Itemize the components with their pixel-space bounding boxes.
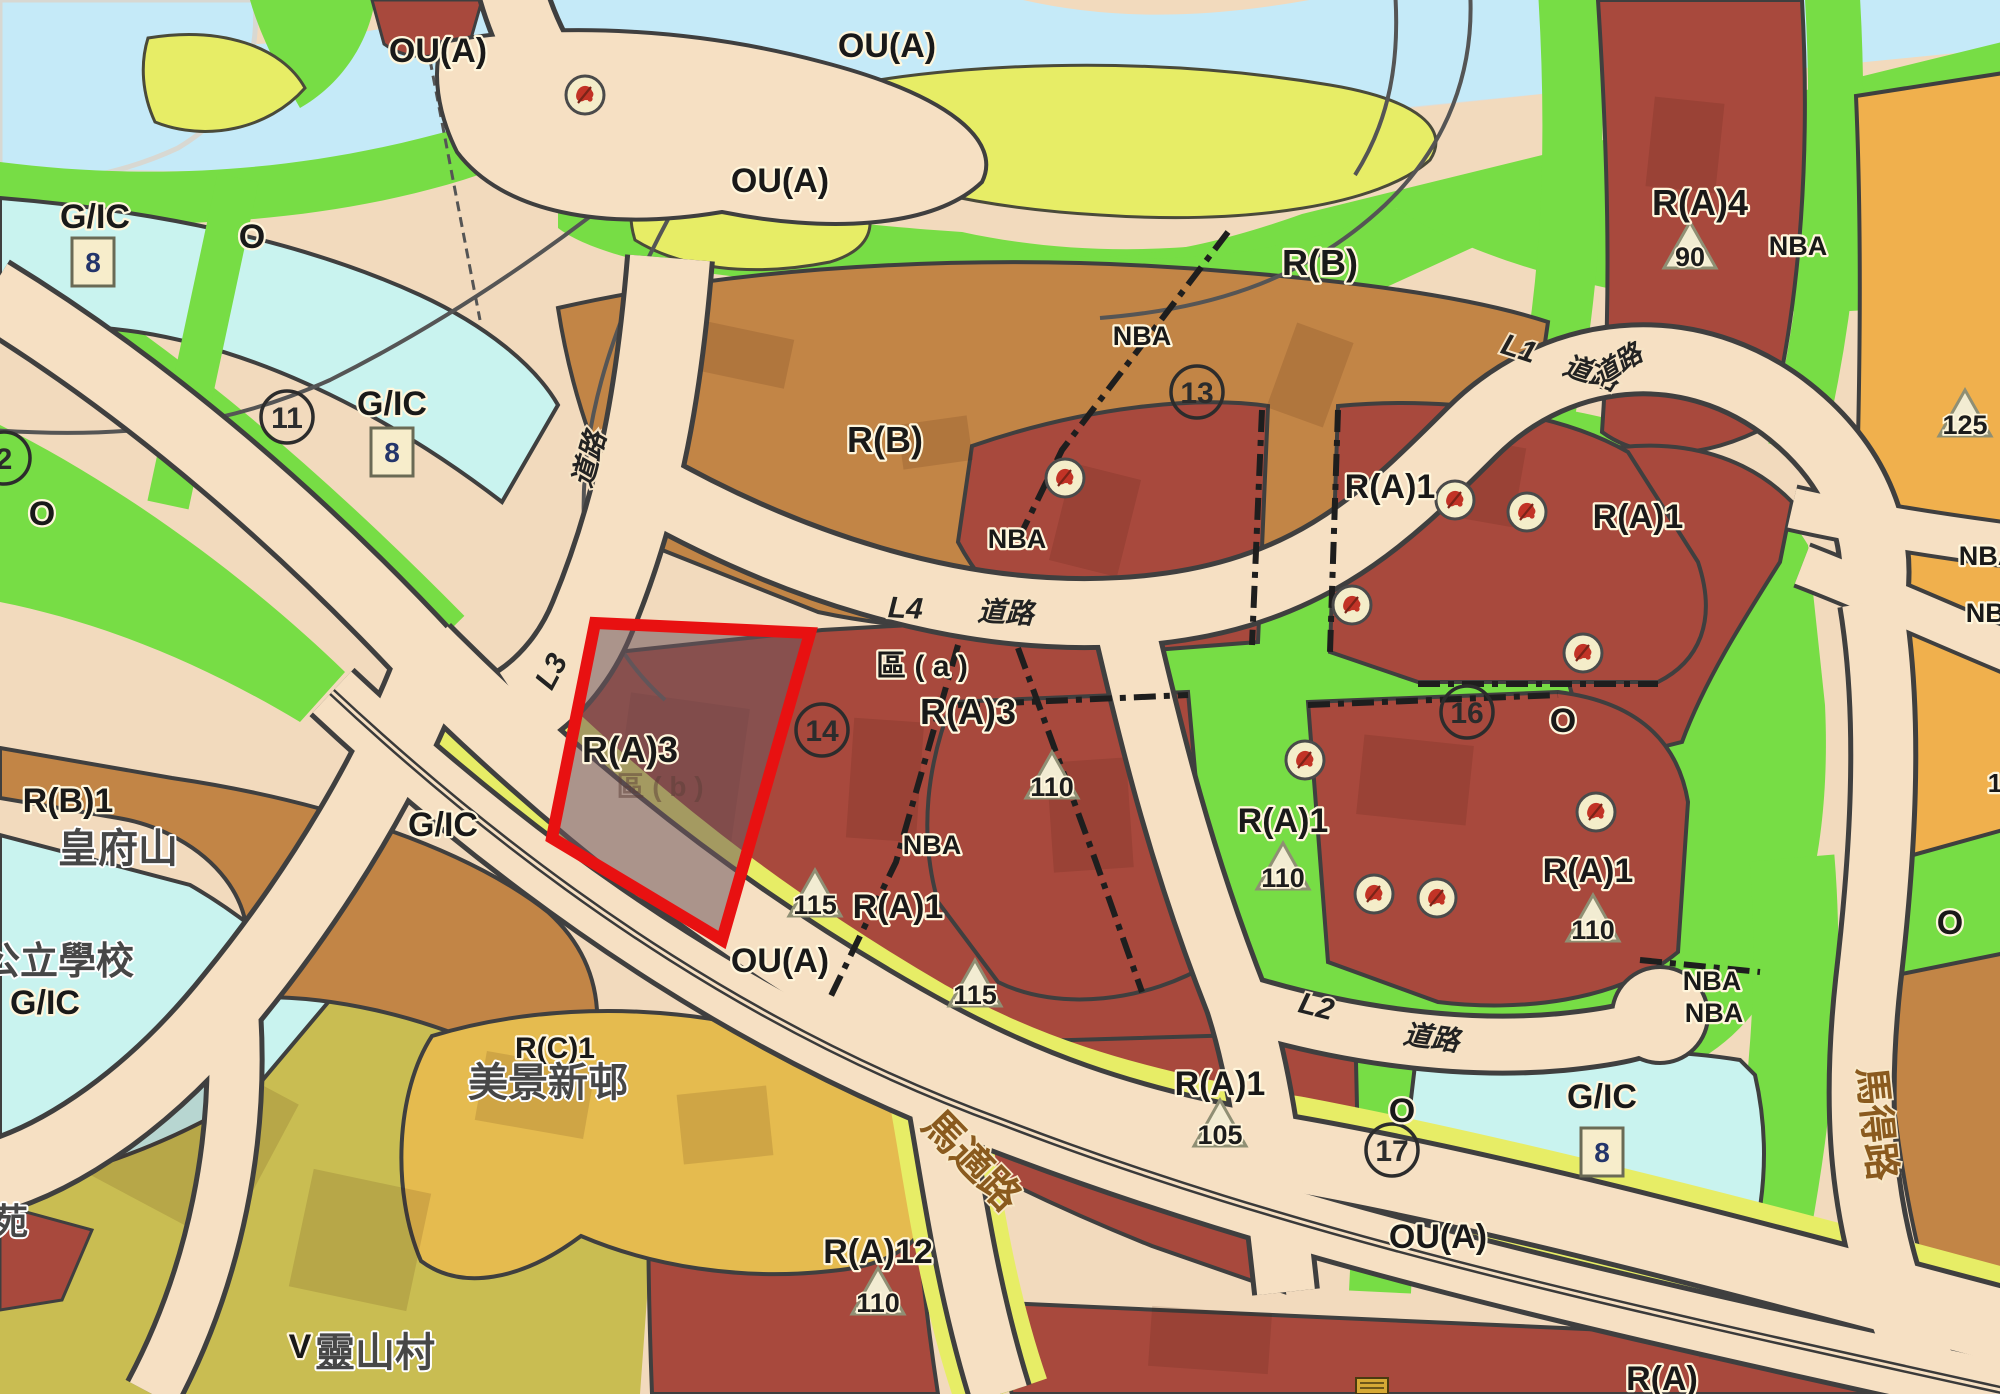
- zone-label: R(A)3: [582, 729, 678, 770]
- svg-text:90: 90: [1675, 242, 1705, 272]
- zone-label: OU(A): [731, 162, 829, 200]
- svg-text:11: 11: [271, 402, 303, 435]
- heritage-marker-icon[interactable]: [1333, 586, 1371, 624]
- zone-label: OU(A): [731, 942, 829, 980]
- zone-label: 苑: [0, 1201, 28, 1242]
- zoning-map: 888 90125110115115110110110105 112131416…: [0, 0, 2000, 1394]
- heritage-marker-icon[interactable]: [566, 76, 604, 114]
- heritage-marker-icon[interactable]: [1355, 875, 1393, 913]
- zone-label: R(B)1: [23, 782, 114, 820]
- zone-label: 區 ( b ): [616, 771, 703, 802]
- zone-label: 皇府山: [58, 827, 178, 871]
- zone-label: 公立學校: [0, 941, 134, 983]
- zone-label: R(A)1: [1175, 1065, 1266, 1103]
- heritage-marker-icon[interactable]: [1508, 493, 1546, 531]
- zone-label: 美景新邨: [468, 1061, 628, 1105]
- zone-label: G/IC: [357, 385, 427, 423]
- zone-label: V: [289, 1328, 312, 1366]
- zone-label: R(A)3: [920, 691, 1016, 732]
- zone-label: O: [1937, 904, 1963, 942]
- svg-text:115: 115: [793, 890, 837, 920]
- svg-text:115: 115: [953, 980, 997, 1010]
- svg-text:110: 110: [856, 1288, 900, 1318]
- gic-site-badge: 8: [72, 238, 114, 286]
- zone-label: NBA: [1683, 966, 1742, 996]
- zone-label: G/IC: [60, 198, 130, 236]
- gic-site-badge: 8: [1581, 1128, 1623, 1176]
- zone-label: R(A): [1626, 1360, 1698, 1394]
- heritage-marker-icon[interactable]: [1436, 481, 1474, 519]
- heritage-marker-icon[interactable]: [1577, 793, 1615, 831]
- green-strip-east: [1768, 858, 1796, 1230]
- svg-text:110: 110: [1261, 863, 1305, 893]
- svg-text:110: 110: [1030, 772, 1074, 802]
- zone-label: NBA: [1966, 598, 2000, 628]
- zone-label: NBA: [903, 830, 962, 860]
- zone-label: OU(A): [1389, 1218, 1487, 1256]
- zone-label: R(A)1: [1543, 852, 1634, 890]
- zone-label: R(B): [1282, 242, 1358, 283]
- svg-text:2: 2: [0, 443, 12, 476]
- heritage-marker-icon[interactable]: [1564, 634, 1602, 672]
- gic-site-badge: 8: [371, 428, 413, 476]
- svg-text:8: 8: [85, 247, 101, 278]
- heritage-marker-icon[interactable]: [1418, 879, 1456, 917]
- zone-label: G/IC: [1567, 1078, 1637, 1116]
- svg-text:8: 8: [384, 437, 400, 468]
- heritage-marker-icon[interactable]: [1286, 741, 1324, 779]
- zone-label: O: [239, 218, 265, 256]
- svg-text:17: 17: [1375, 1135, 1408, 1168]
- zone-label: R(A)4: [1652, 182, 1748, 223]
- zone-label: O: [1550, 702, 1576, 740]
- svg-text:110: 110: [1571, 915, 1615, 945]
- zone-label: R(A)1: [1593, 498, 1684, 536]
- svg-text:13: 13: [1180, 377, 1213, 410]
- road-label: 道路: [977, 596, 1038, 630]
- zone-label: R(A)1: [853, 888, 944, 926]
- heritage-marker-icon[interactable]: [1046, 459, 1084, 497]
- road-label: L4: [887, 591, 924, 626]
- svg-text:125: 125: [1942, 410, 1987, 440]
- building-icon: [1356, 1378, 1388, 1394]
- zone-label: NBA: [1113, 321, 1172, 351]
- zone-label: O: [1389, 1092, 1415, 1130]
- zone-label: G/IC: [10, 984, 80, 1022]
- zone-label: G/IC: [408, 806, 478, 844]
- svg-text:8: 8: [1594, 1137, 1610, 1168]
- zone-label: R(A)12: [823, 1233, 933, 1271]
- zone-label: NBA: [1685, 998, 1744, 1028]
- zone-label: 1: [1988, 768, 2000, 798]
- svg-text:16: 16: [1450, 697, 1483, 730]
- zone-label: OU(A): [838, 27, 936, 65]
- zone-label: R(A)1: [1345, 468, 1436, 506]
- zone-label: R(A)1: [1238, 802, 1329, 840]
- zone-label: 區 ( a ): [876, 650, 968, 683]
- svg-text:14: 14: [805, 715, 839, 748]
- zone-label: NBA: [1769, 231, 1828, 261]
- zone-label: OU(A): [389, 32, 487, 70]
- svg-text:105: 105: [1197, 1120, 1242, 1150]
- zone-label: 靈山村: [315, 1331, 435, 1375]
- zone-label: R(B): [847, 419, 923, 460]
- zone-label: NBA: [988, 524, 1047, 554]
- zone-label: O: [29, 495, 55, 533]
- zone-label: NBA: [1959, 541, 2000, 571]
